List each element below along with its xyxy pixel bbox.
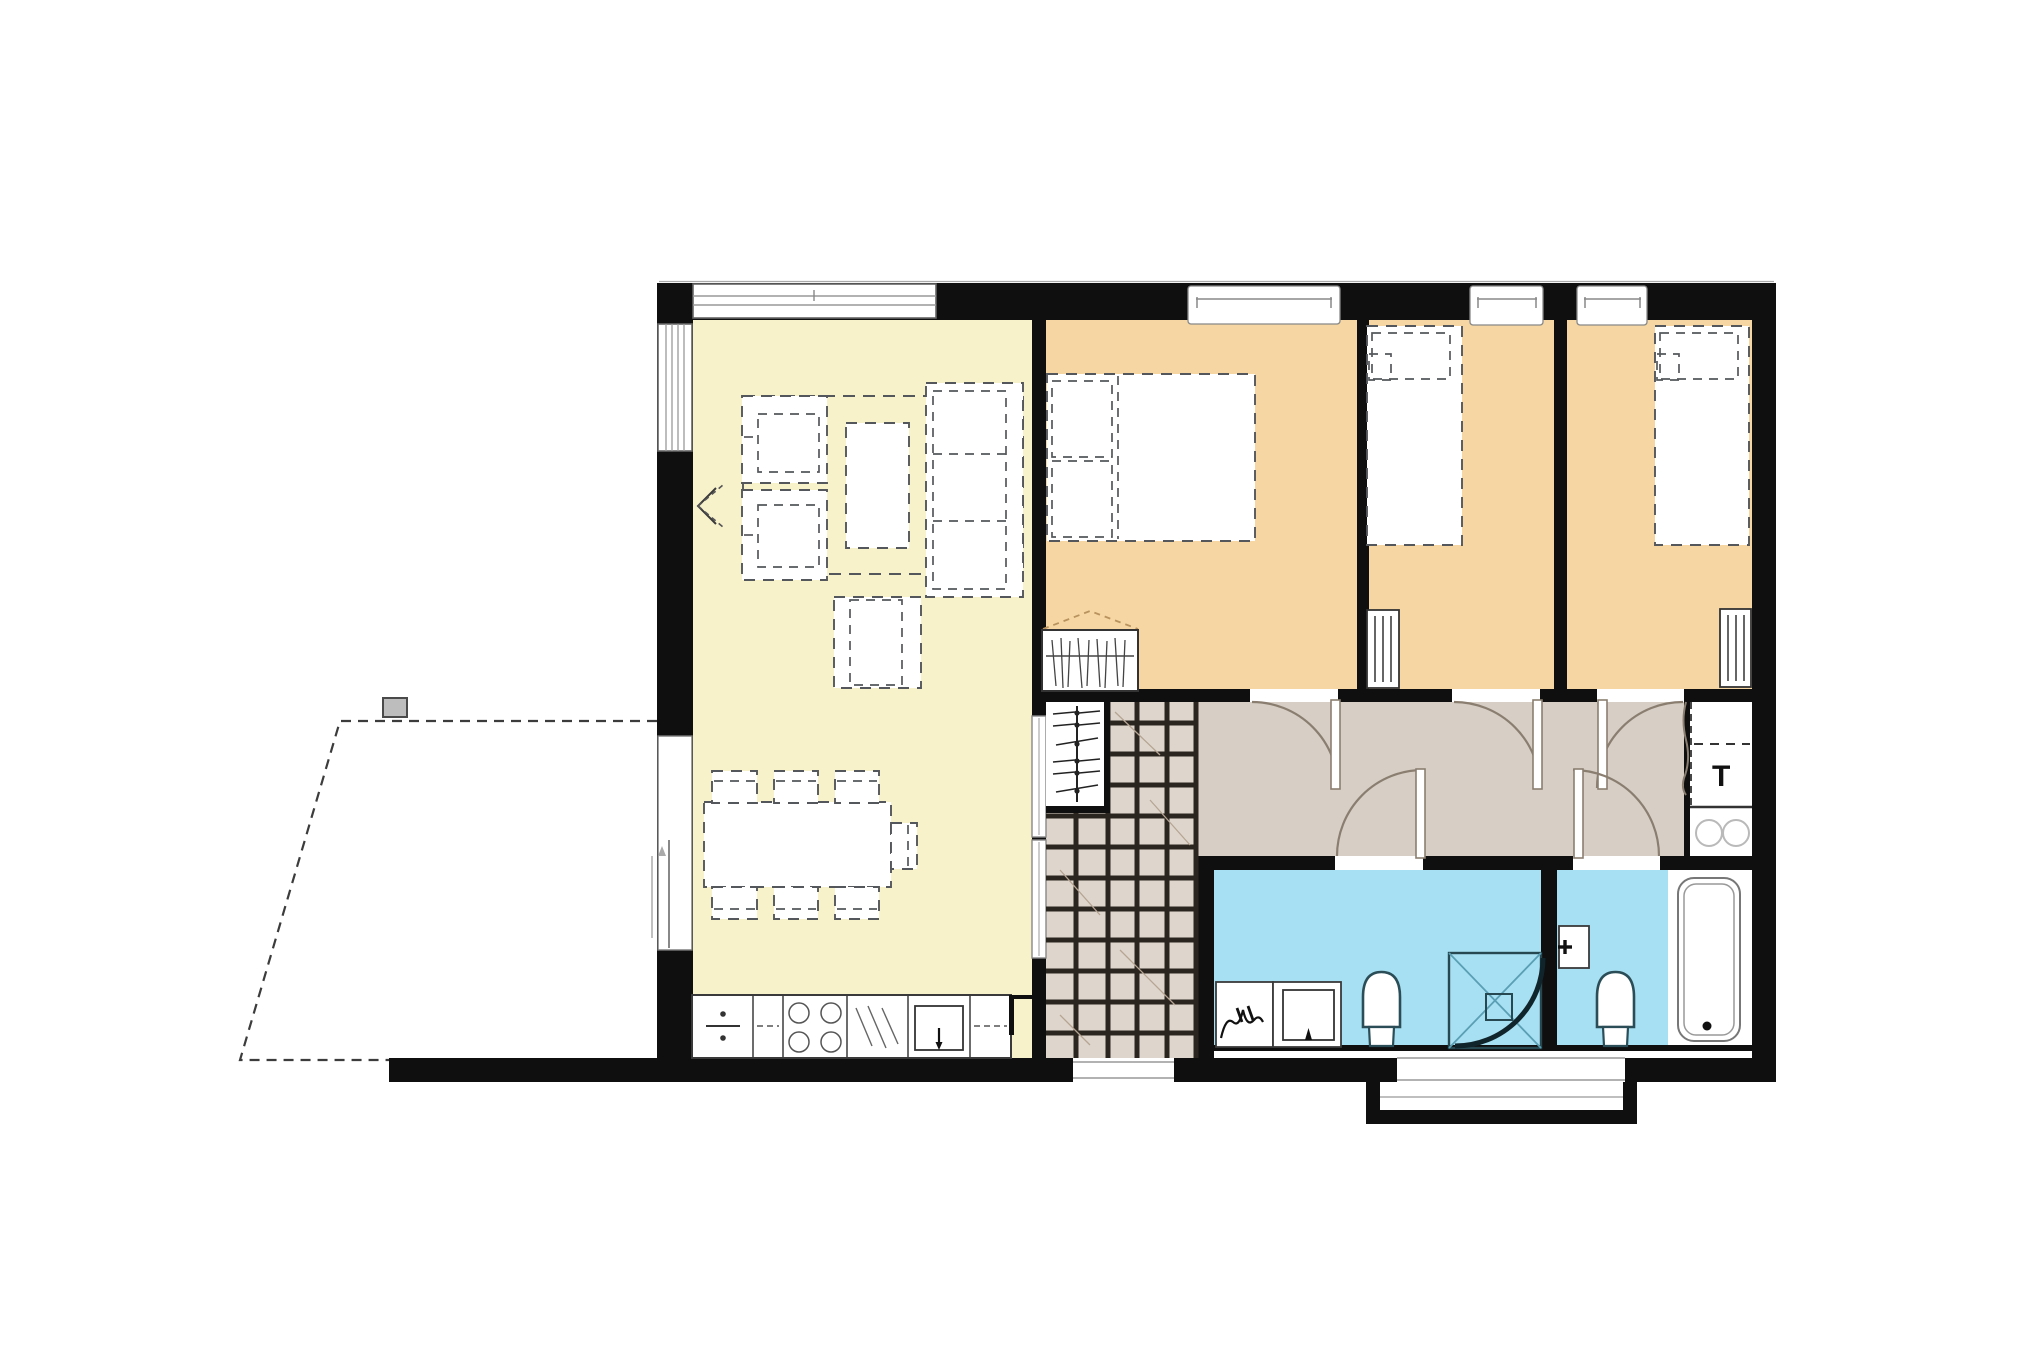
svg-text:T: T: [1712, 760, 1730, 793]
